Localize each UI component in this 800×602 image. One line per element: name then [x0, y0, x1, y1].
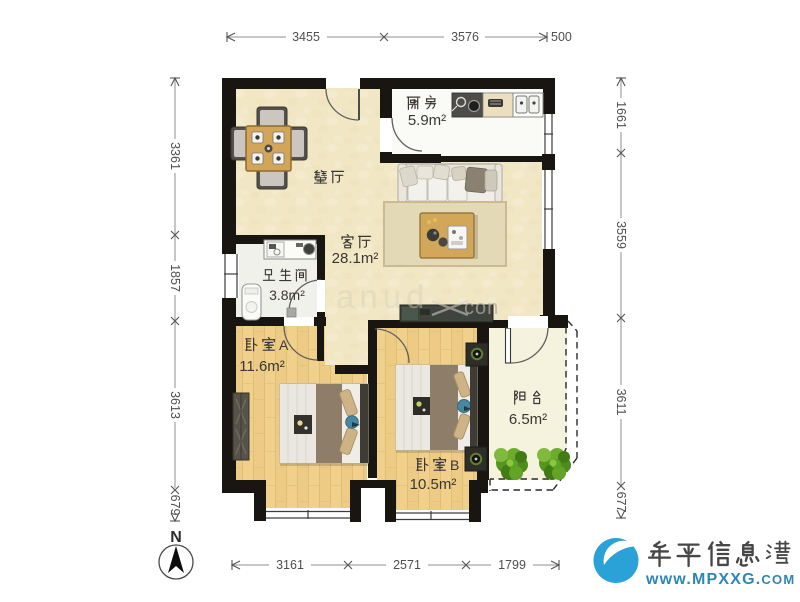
svg-text:6.5m²: 6.5m² — [509, 411, 547, 428]
svg-text:2571: 2571 — [393, 558, 421, 572]
svg-text:anud: anud — [336, 278, 429, 315]
svg-text:B: B — [450, 457, 459, 473]
svg-text:3161: 3161 — [276, 558, 304, 572]
svg-text:3361: 3361 — [168, 142, 182, 170]
svg-text:3611: 3611 — [614, 389, 628, 416]
svg-text:N: N — [170, 529, 182, 546]
svg-text:con: con — [464, 297, 499, 319]
svg-text:500: 500 — [551, 30, 572, 44]
svg-text:3455: 3455 — [292, 30, 320, 44]
svg-text:3.8m²: 3.8m² — [269, 287, 305, 303]
svg-text:1661: 1661 — [614, 101, 628, 129]
svg-text:3559: 3559 — [614, 221, 628, 249]
svg-text:11.6m²: 11.6m² — [239, 358, 285, 375]
svg-text:10.5m²: 10.5m² — [410, 476, 457, 493]
svg-text:677: 677 — [614, 492, 628, 513]
svg-text:1857: 1857 — [168, 264, 182, 292]
svg-text:www.MPXXG.COM: www.MPXXG.COM — [645, 571, 795, 588]
svg-text:A: A — [279, 337, 289, 353]
svg-text:28.1m²: 28.1m² — [332, 250, 379, 267]
svg-text:1799: 1799 — [498, 558, 526, 572]
svg-text:3613: 3613 — [168, 391, 182, 419]
svg-text:3576: 3576 — [451, 30, 479, 44]
svg-text:679: 679 — [168, 495, 182, 516]
svg-text:5.9m²: 5.9m² — [408, 112, 446, 129]
